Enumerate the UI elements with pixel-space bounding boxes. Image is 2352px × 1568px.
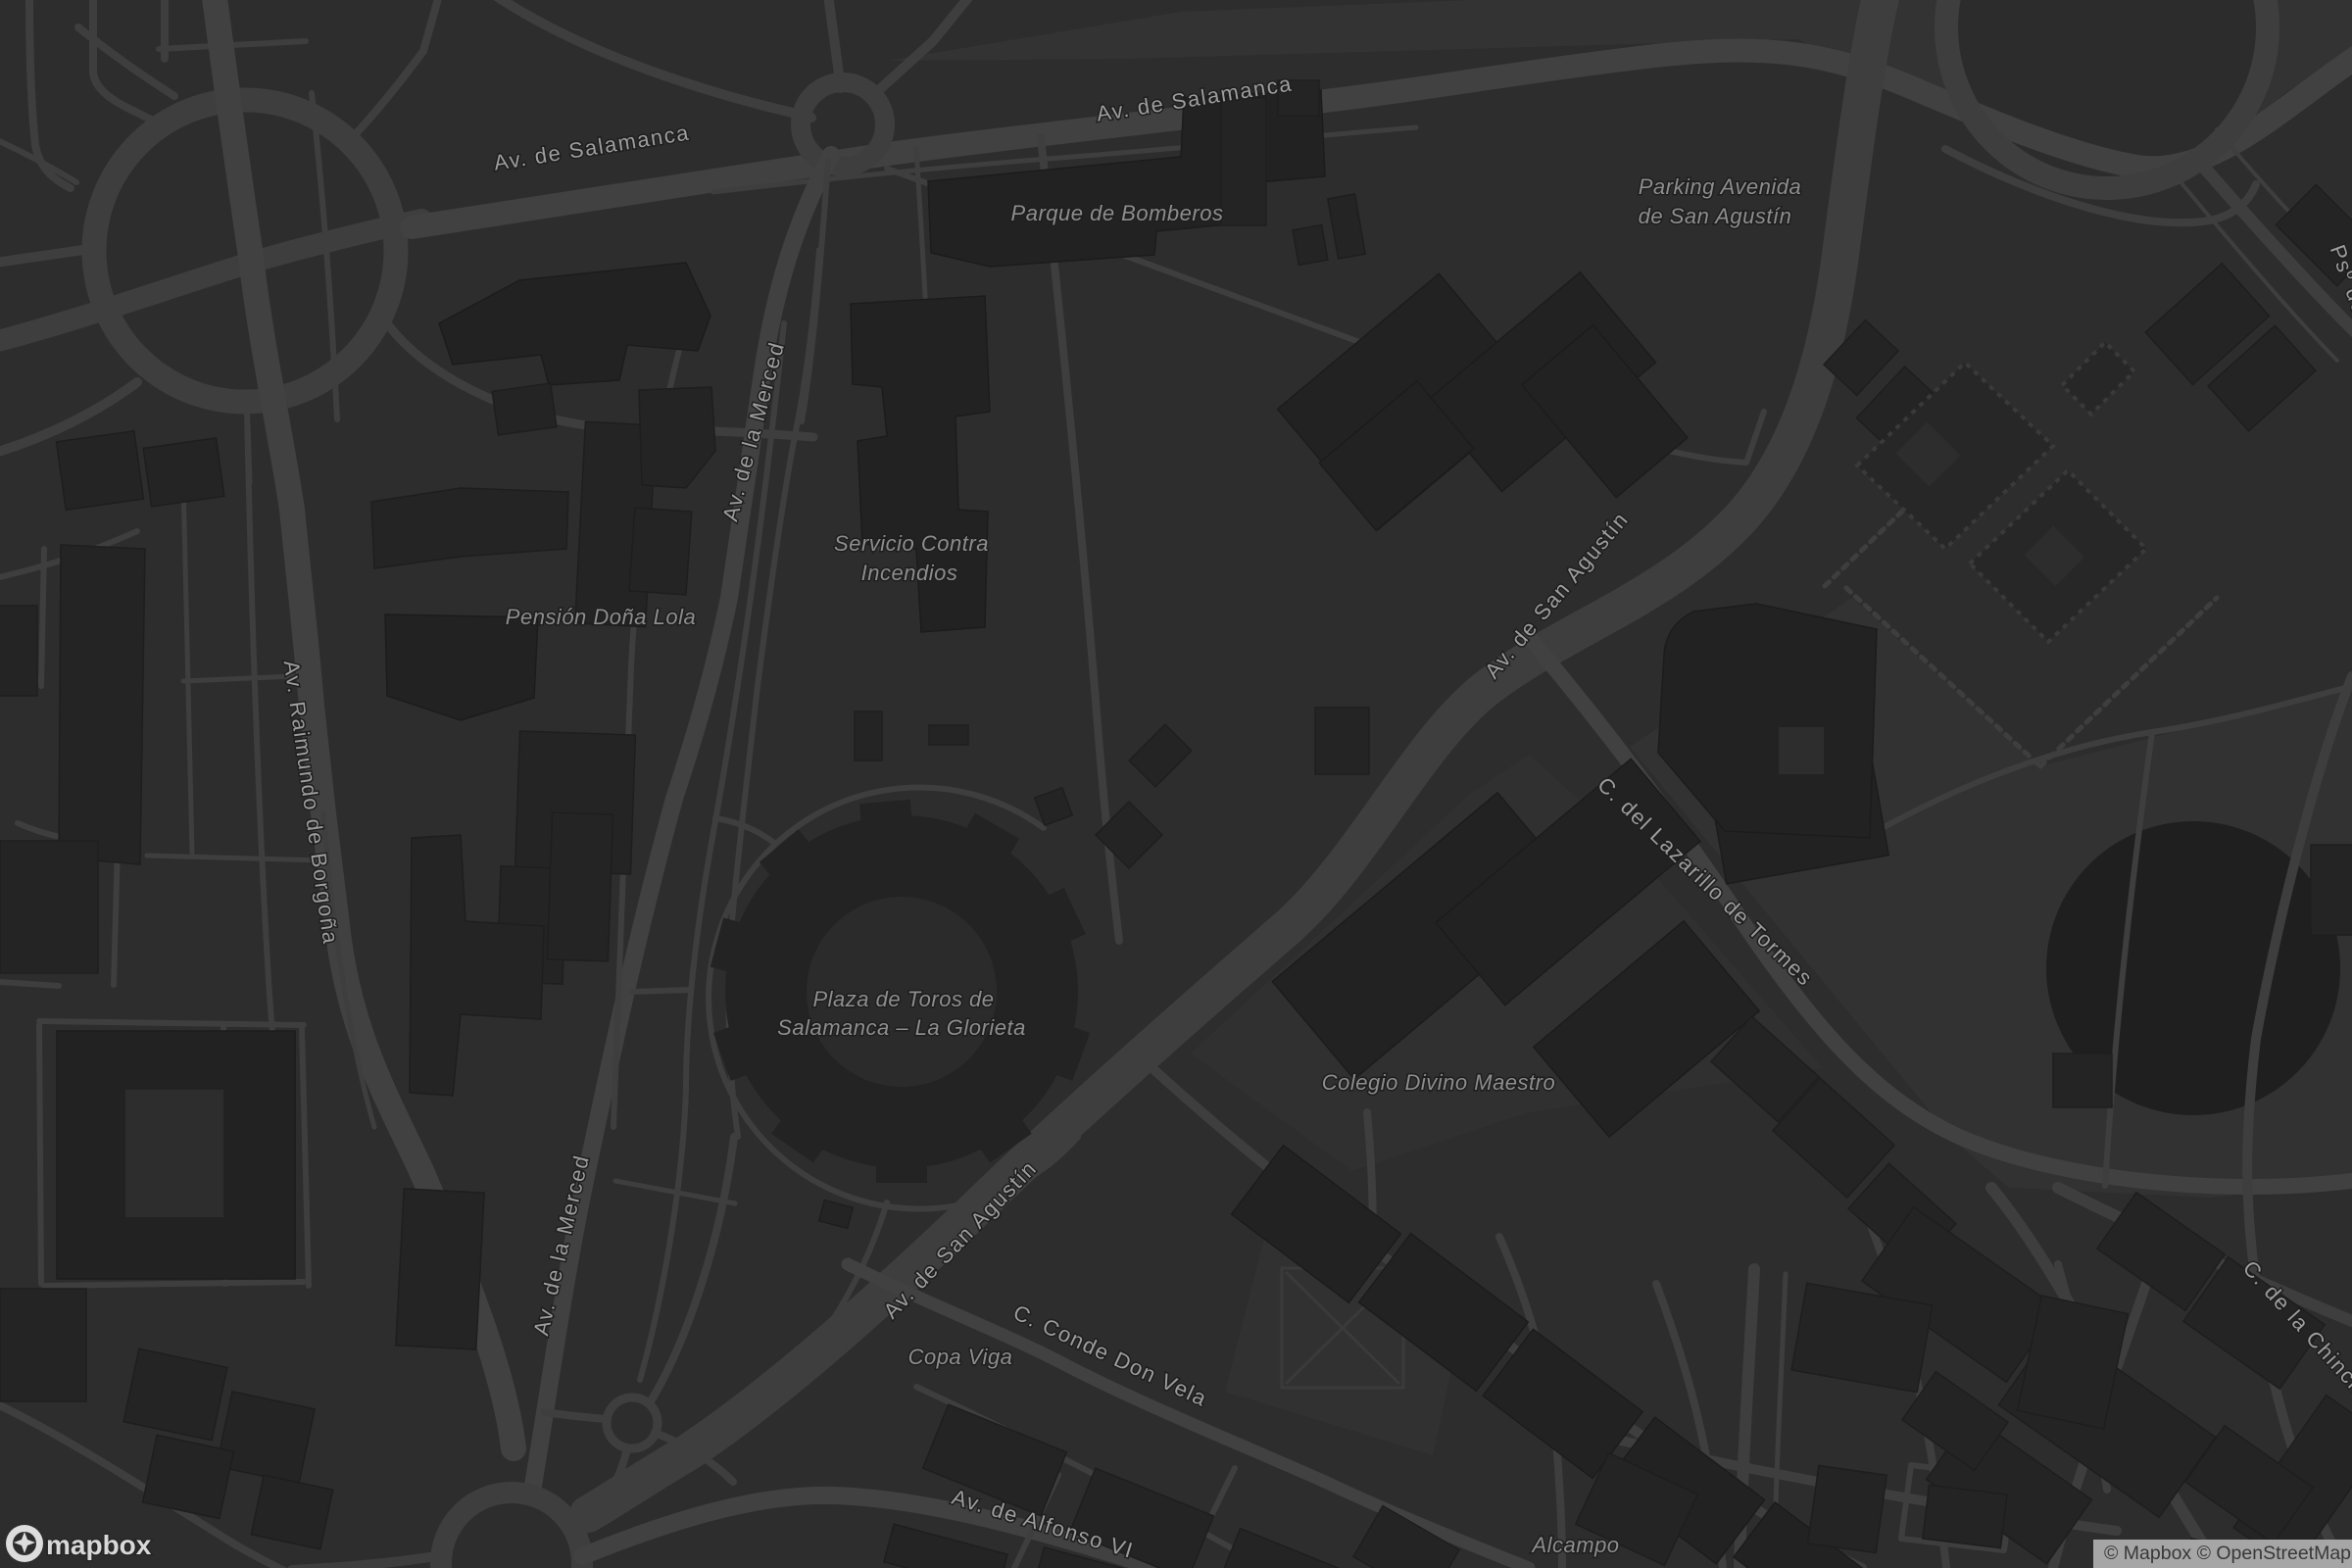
svg-text:Plaza de Toros de: Plaza de Toros de: [812, 987, 994, 1011]
svg-text:Parque de Bomberos: Parque de Bomberos: [1011, 201, 1224, 225]
svg-text:© Mapbox © OpenStreetMap: © Mapbox © OpenStreetMap: [2104, 1543, 2351, 1564]
svg-text:de San Agustín: de San Agustín: [1639, 204, 1792, 228]
svg-text:Alcampo: Alcampo: [1530, 1533, 1619, 1557]
svg-text:Salamanca – La Glorieta: Salamanca – La Glorieta: [777, 1015, 1026, 1040]
svg-text:Pensión Doña Lola: Pensión Doña Lola: [506, 605, 696, 629]
svg-text:Incendios: Incendios: [861, 561, 958, 585]
svg-text:Copa Viga: Copa Viga: [908, 1345, 1013, 1369]
svg-text:mapbox: mapbox: [46, 1530, 152, 1560]
svg-text:Parking Avenida: Parking Avenida: [1639, 174, 1802, 199]
svg-text:Colegio Divino Maestro: Colegio Divino Maestro: [1322, 1070, 1555, 1095]
svg-text:Servicio Contra: Servicio Contra: [834, 531, 989, 556]
